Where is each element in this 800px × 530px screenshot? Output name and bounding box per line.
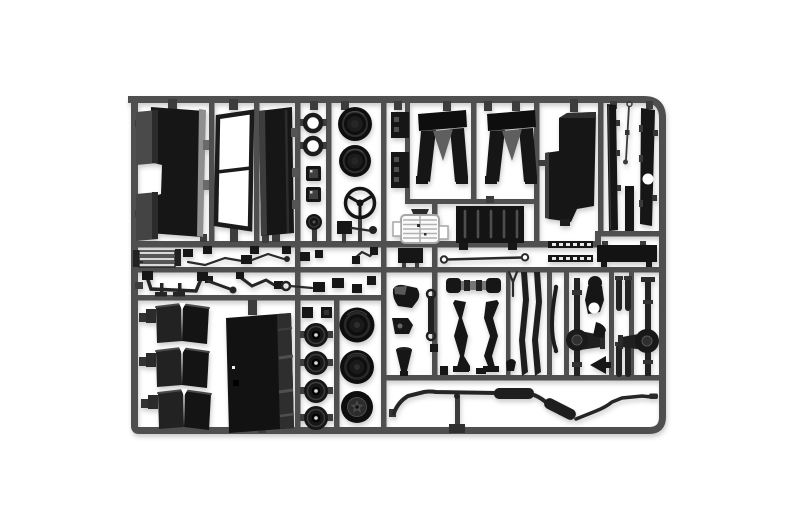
wrench-link	[427, 290, 435, 340]
window-frame	[216, 112, 252, 229]
horn-disc	[306, 214, 322, 230]
chassis-strip-2	[625, 186, 634, 231]
sprue-photo	[0, 0, 800, 530]
spare-wheel-star-hub	[341, 391, 373, 423]
studio-background	[0, 0, 800, 530]
leaf-spring-stack	[133, 249, 181, 267]
product-photo	[0, 0, 800, 530]
cargo-panel	[226, 313, 294, 433]
